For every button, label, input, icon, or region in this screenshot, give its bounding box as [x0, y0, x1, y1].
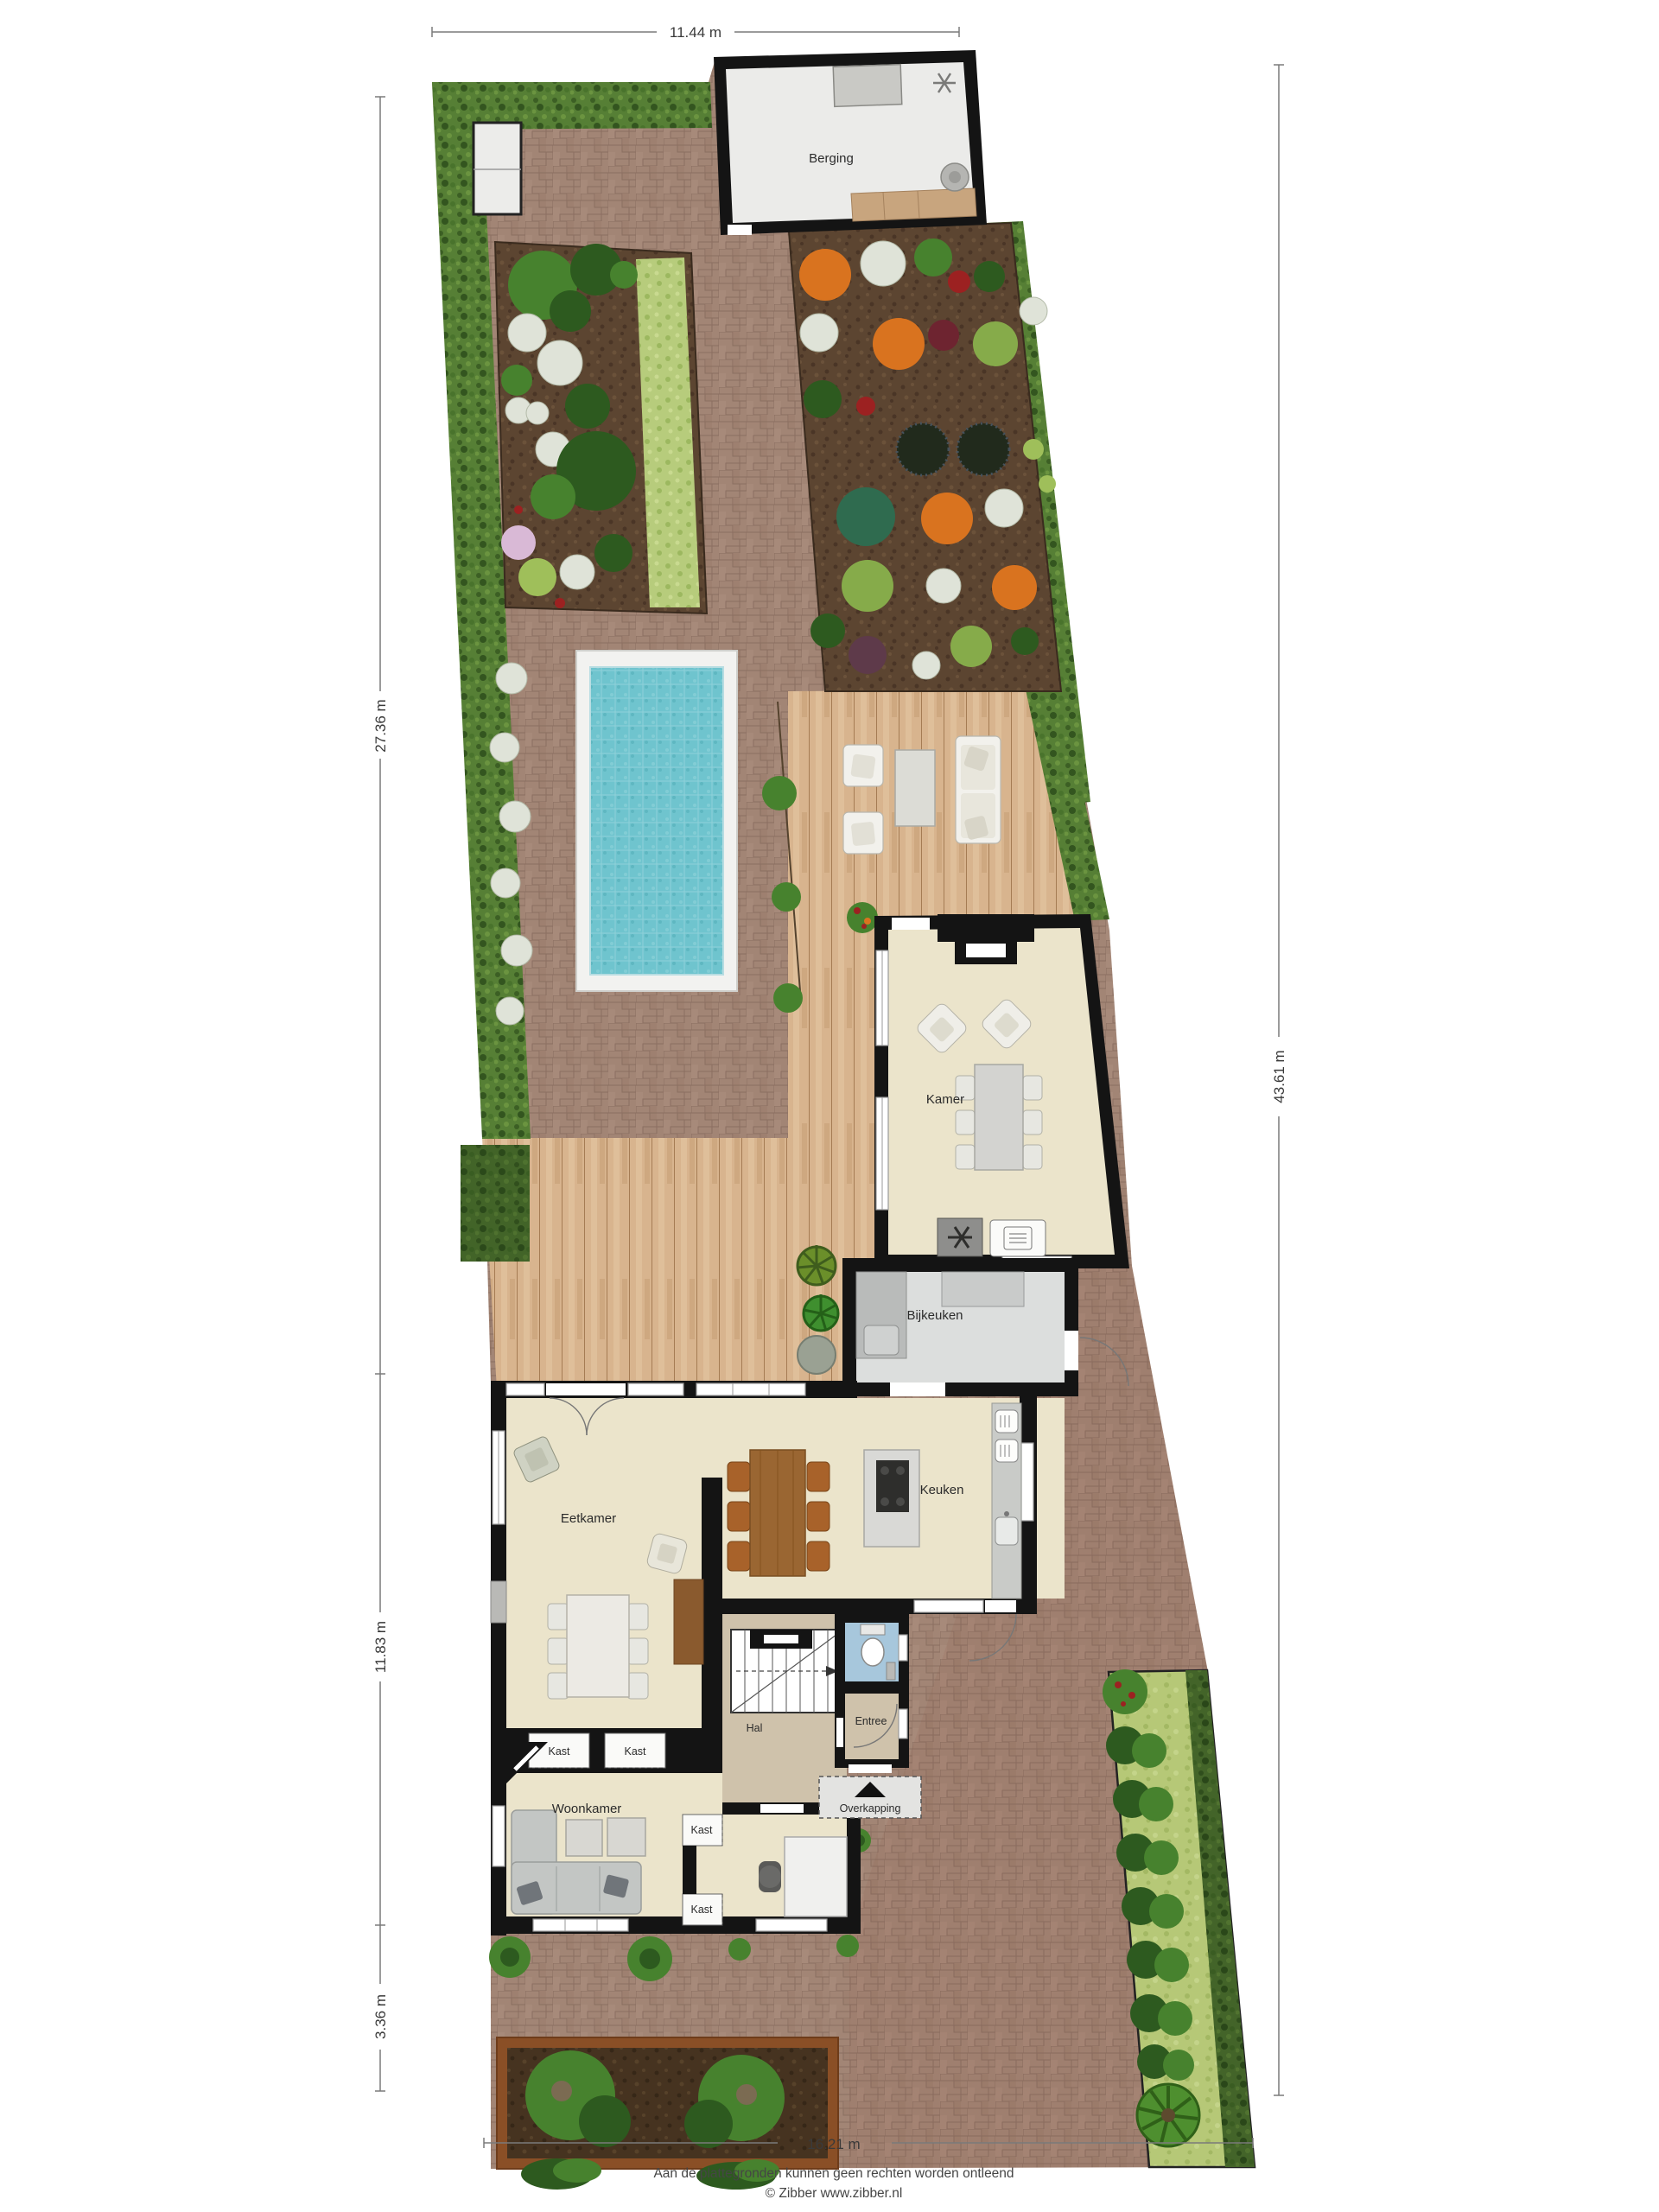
room-label-eetkamer: Eetkamer [561, 1511, 616, 1526]
kamer-table-set [956, 1065, 1042, 1170]
berging-room: Berging [714, 50, 987, 235]
bijkeuken-door [1065, 1331, 1078, 1370]
kamer-room: Kamer [874, 914, 1129, 1268]
dim-left-upper: 27.36 m [372, 699, 389, 752]
footer-copyright: © Zibber www.zibber.nl [766, 2186, 903, 2201]
pool-water [590, 667, 723, 975]
palm-bush [1137, 2084, 1199, 2146]
room-label-kast-4: Kast [690, 1904, 713, 1916]
dim-right: 43.61 m [1271, 1050, 1287, 1103]
palm-plants [798, 1245, 838, 1374]
kitchen-sink [995, 1517, 1018, 1545]
berging-door [728, 225, 752, 235]
room-label-kast-1: Kast [548, 1745, 570, 1758]
room-label-woonkamer: Woonkamer [552, 1802, 622, 1816]
room-label-kast-3: Kast [690, 1824, 713, 1836]
garden-shed [474, 123, 521, 214]
floorplan-canvas: Berging Kamer [0, 0, 1659, 2212]
room-label-bijkeuken: Bijkeuken [906, 1308, 963, 1323]
wc-room [835, 1614, 909, 1690]
workbench [833, 65, 902, 107]
kamer-door-opening [892, 918, 930, 930]
staircase [731, 1630, 843, 1713]
toilet [861, 1638, 884, 1666]
room-label-berging: Berging [809, 151, 854, 166]
overkapping-area: Overkapping [819, 1777, 921, 1818]
room-label-hal: Hal [747, 1722, 763, 1734]
room-label-overkapping: Overkapping [840, 1802, 901, 1815]
room-label-keuken: Keuken [920, 1483, 964, 1497]
kitchenette-icons [938, 1218, 1046, 1256]
utility-sink [864, 1325, 899, 1355]
room-label-entree: Entree [855, 1715, 887, 1727]
swimming-pool [576, 651, 737, 991]
footer-disclaimer: Aan de plattegronden kunnen geen rechten… [653, 2166, 1014, 2181]
dim-bottom: 16.21 m [807, 2136, 860, 2152]
desk [785, 1837, 847, 1916]
coffee-table [895, 750, 935, 826]
room-label-kast-2: Kast [624, 1745, 646, 1758]
dim-left-lower: 3.36 m [372, 1994, 389, 2039]
side-table [566, 1820, 602, 1856]
dim-top: 11.44 m [670, 24, 721, 41]
sideboard [674, 1580, 703, 1664]
room-label-kamer: Kamer [926, 1092, 964, 1107]
garden-bed-left [495, 242, 707, 613]
dim-left-middle: 11.83 m [372, 1621, 389, 1673]
